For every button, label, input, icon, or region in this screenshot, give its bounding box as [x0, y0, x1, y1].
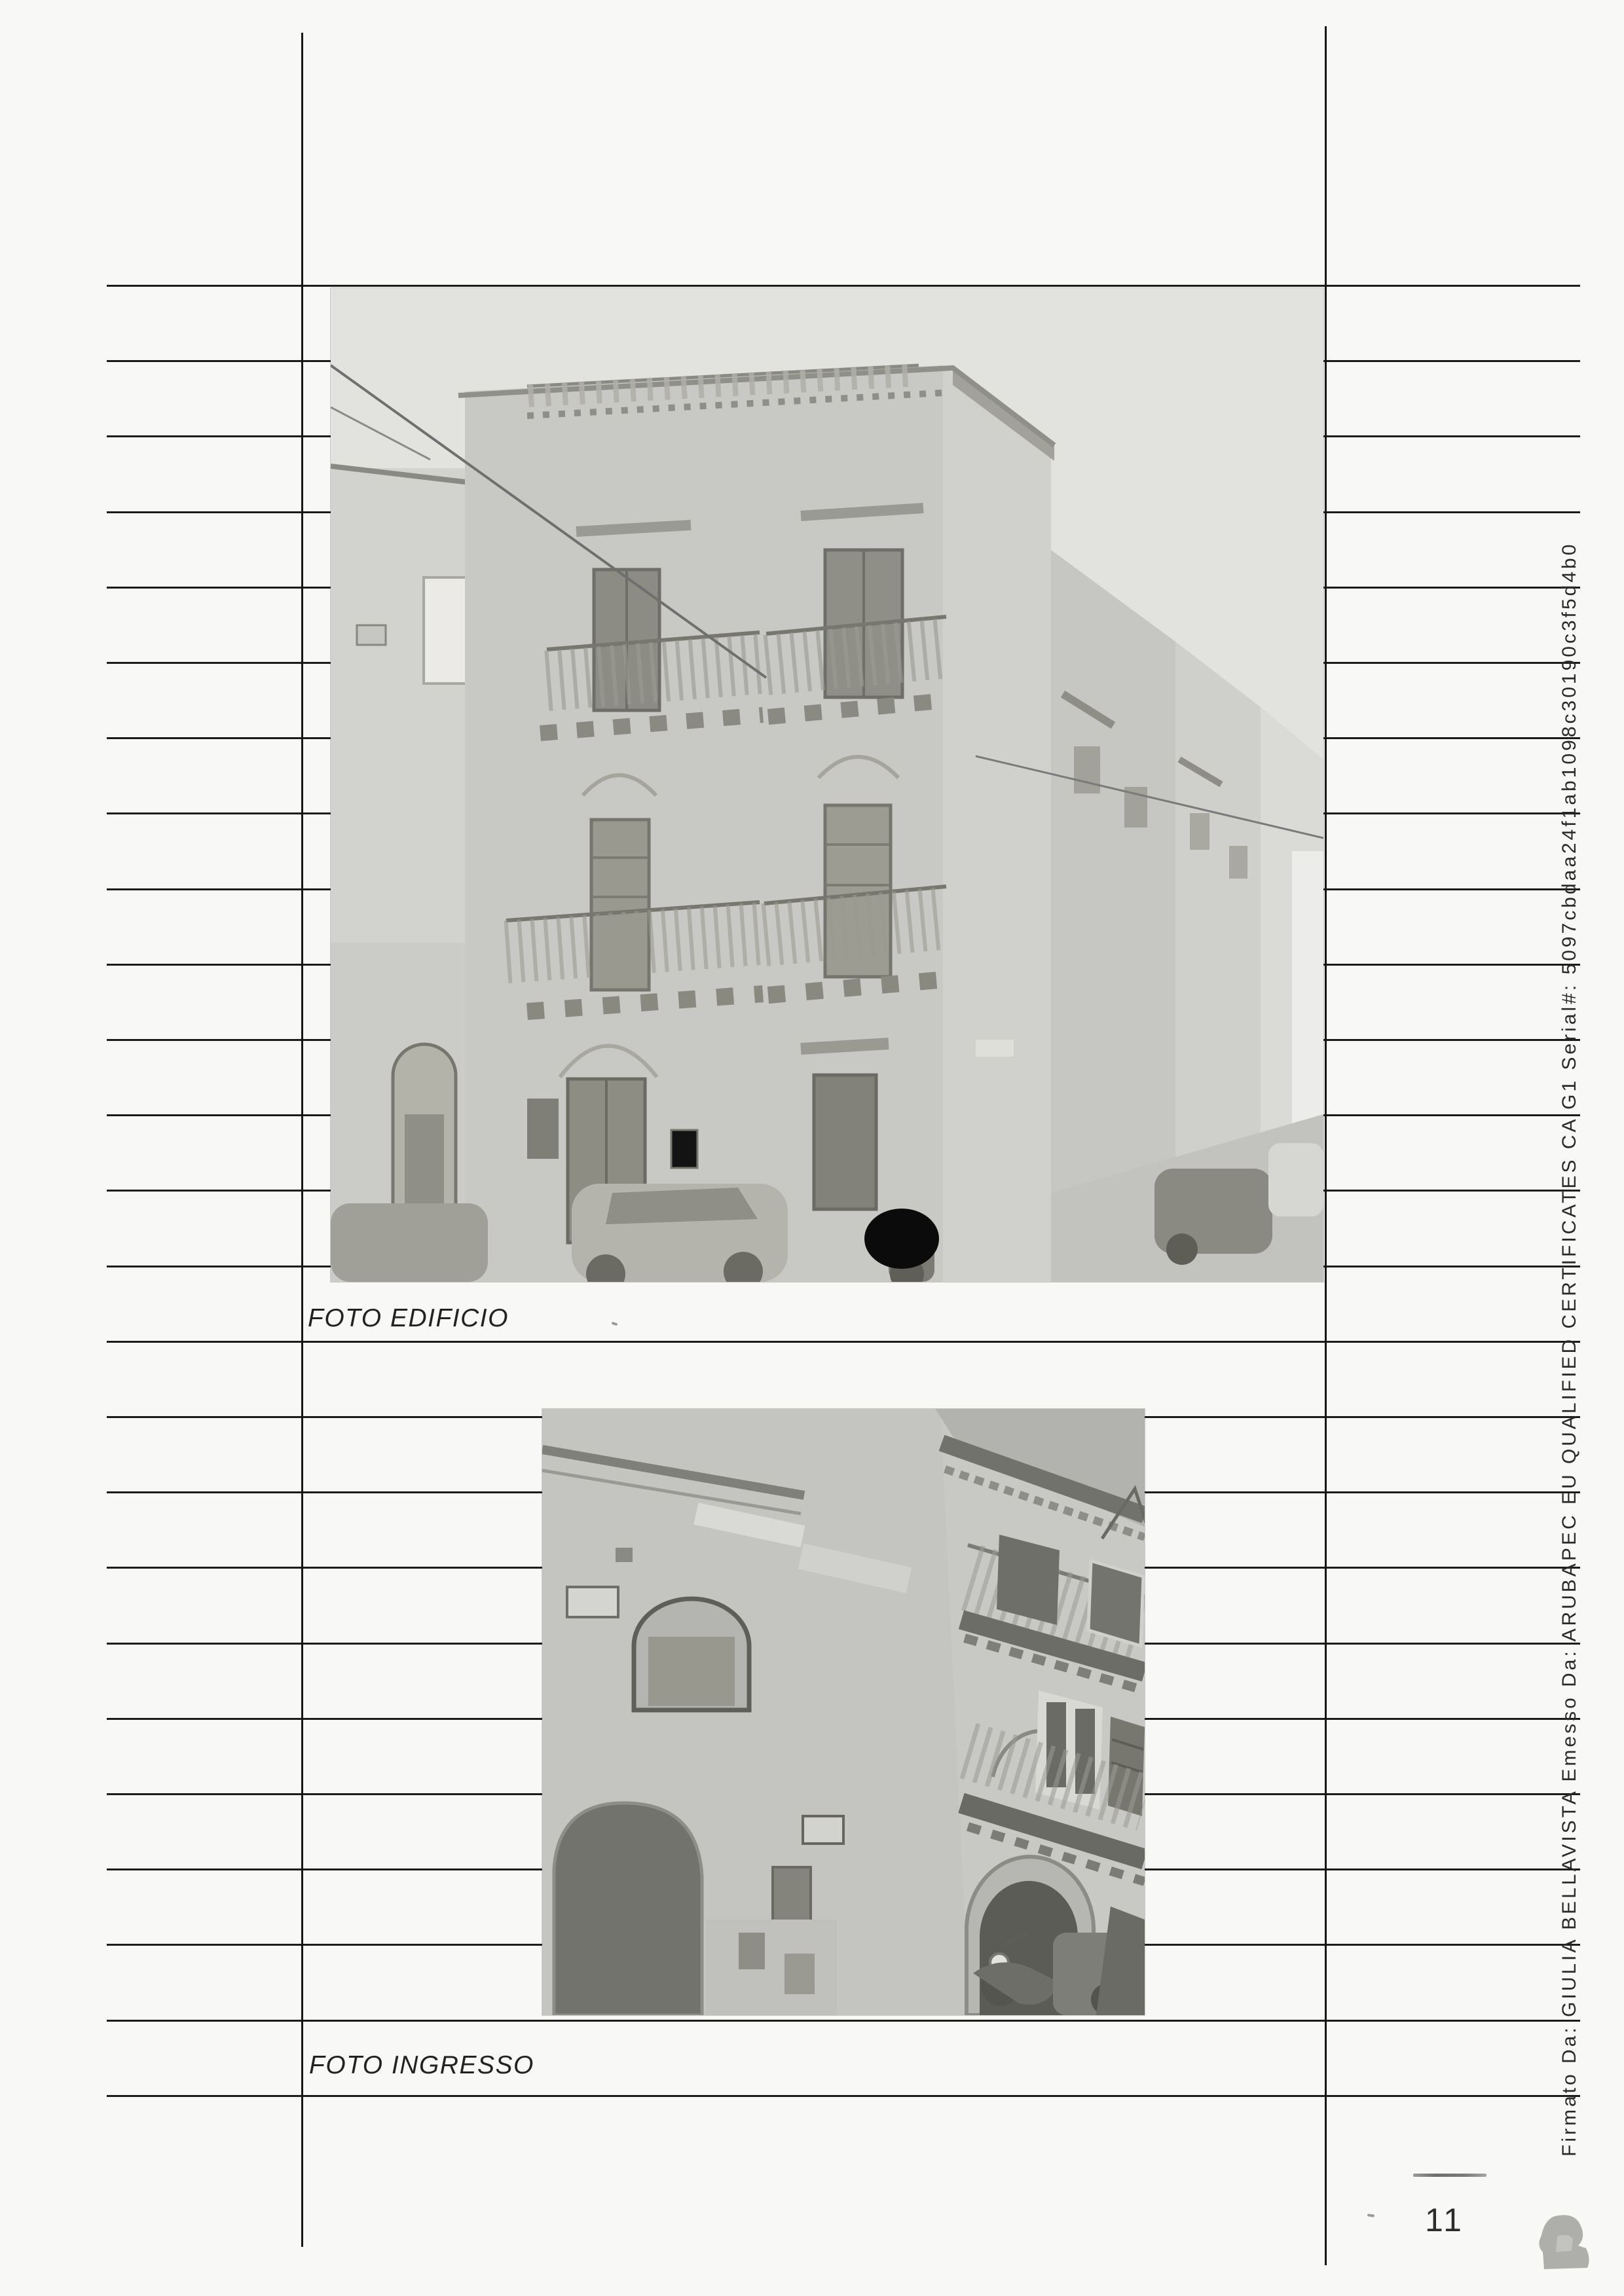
entrance-photo-graphic	[542, 1409, 1145, 2015]
scanned-appraisal-page: FOTO EDIFICIO	[0, 0, 1624, 2296]
building-photo	[331, 288, 1323, 1282]
ruled-line	[107, 2020, 1580, 2022]
caption-foto-ingresso: FOTO INGRESSO	[309, 2051, 534, 2080]
entrance-photo	[542, 1409, 1145, 2015]
scan-speck	[612, 1322, 618, 1326]
ruled-line	[107, 285, 1580, 287]
scan-speck	[1367, 2214, 1375, 2217]
signature-dash	[1413, 2174, 1486, 2177]
caption-foto-edificio: FOTO EDIFICIO	[308, 1304, 509, 1333]
right-margin-rule	[1325, 26, 1327, 2265]
ruled-line	[107, 2095, 1580, 2097]
left-margin-rule	[301, 33, 303, 2247]
ruled-line	[107, 1341, 1580, 1343]
page-number: 11	[1425, 2201, 1464, 2239]
stamp-blob	[1539, 2214, 1590, 2269]
building-photo-graphic	[331, 288, 1323, 1282]
digital-signature-text: Firmato Da: GIULIA BELLAVISTA Emesso Da:…	[1559, 427, 1587, 2157]
